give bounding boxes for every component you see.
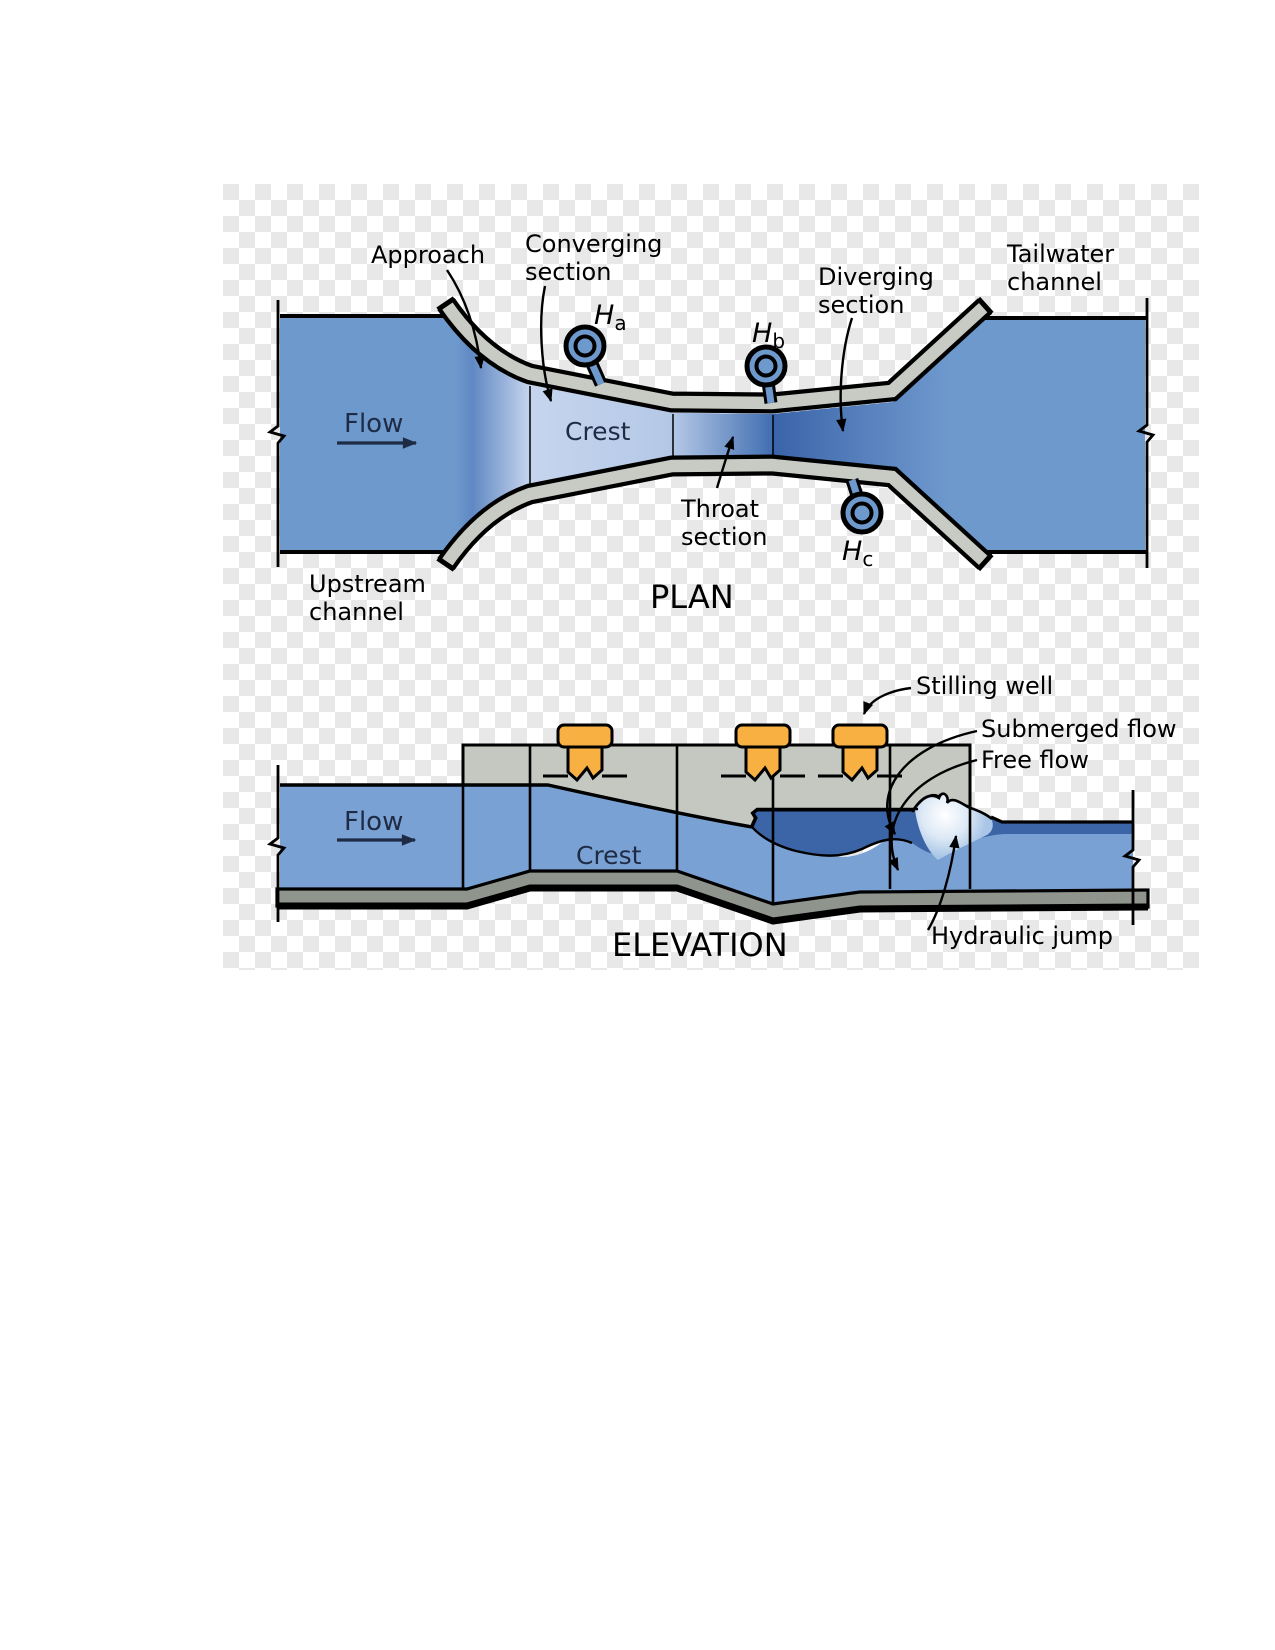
- parshall-flume-diagram: Approach Converging section Diverging se…: [0, 0, 1275, 1650]
- label-diverging-1: Diverging: [818, 263, 934, 291]
- label-tailwater-1: Tailwater: [1006, 240, 1114, 268]
- label-upstream-1: Upstream: [309, 570, 426, 598]
- label-submerged-flow: Submerged flow: [981, 715, 1177, 743]
- label-plan-crest: Crest: [565, 417, 631, 446]
- label-throat-2: section: [681, 523, 767, 551]
- label-hydraulic-jump: Hydraulic jump: [931, 922, 1113, 950]
- label-converging-2: section: [525, 258, 611, 286]
- elevation-view-title: ELEVATION: [612, 926, 788, 964]
- label-diverging-2: section: [818, 291, 904, 319]
- label-throat-1: Throat: [680, 495, 759, 523]
- label-elevation-flow: Flow: [344, 807, 403, 837]
- label-upstream-2: channel: [309, 598, 404, 626]
- label-free-flow: Free flow: [981, 746, 1089, 774]
- plan-view-title: PLAN: [650, 578, 734, 616]
- label-elevation-crest: Crest: [576, 841, 642, 870]
- label-converging-1: Converging: [525, 230, 662, 258]
- label-approach: Approach: [371, 241, 485, 269]
- label-plan-flow: Flow: [344, 409, 403, 439]
- label-tailwater-2: channel: [1007, 268, 1102, 296]
- label-stilling-well: Stilling well: [916, 672, 1053, 700]
